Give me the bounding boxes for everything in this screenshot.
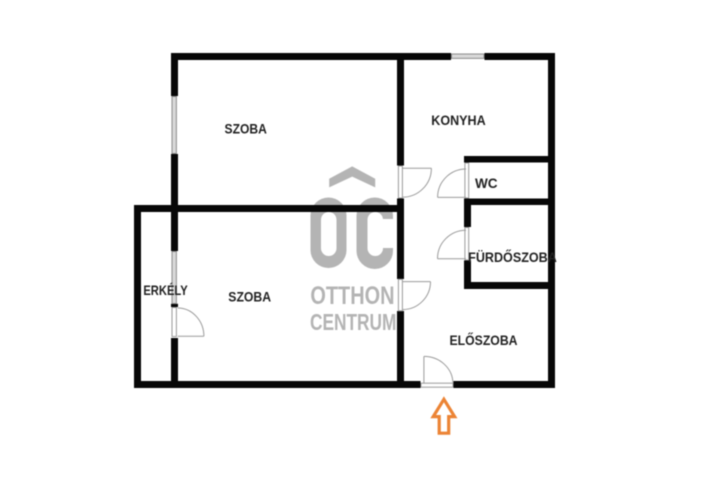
svg-text:SZOBA: SZOBA xyxy=(225,122,267,137)
svg-text:ELŐSZOBA: ELŐSZOBA xyxy=(450,333,518,348)
svg-text:FÜRDŐSZOBA: FÜRDŐSZOBA xyxy=(468,250,557,265)
svg-text:SZOBA: SZOBA xyxy=(228,290,271,305)
svg-text:KONYHA: KONYHA xyxy=(431,113,486,128)
svg-text:WC: WC xyxy=(475,176,498,191)
svg-text:CENTRUM: CENTRUM xyxy=(310,309,396,335)
svg-text:OTTHON: OTTHON xyxy=(310,282,394,310)
svg-text:ERKÉLY: ERKÉLY xyxy=(143,283,187,298)
